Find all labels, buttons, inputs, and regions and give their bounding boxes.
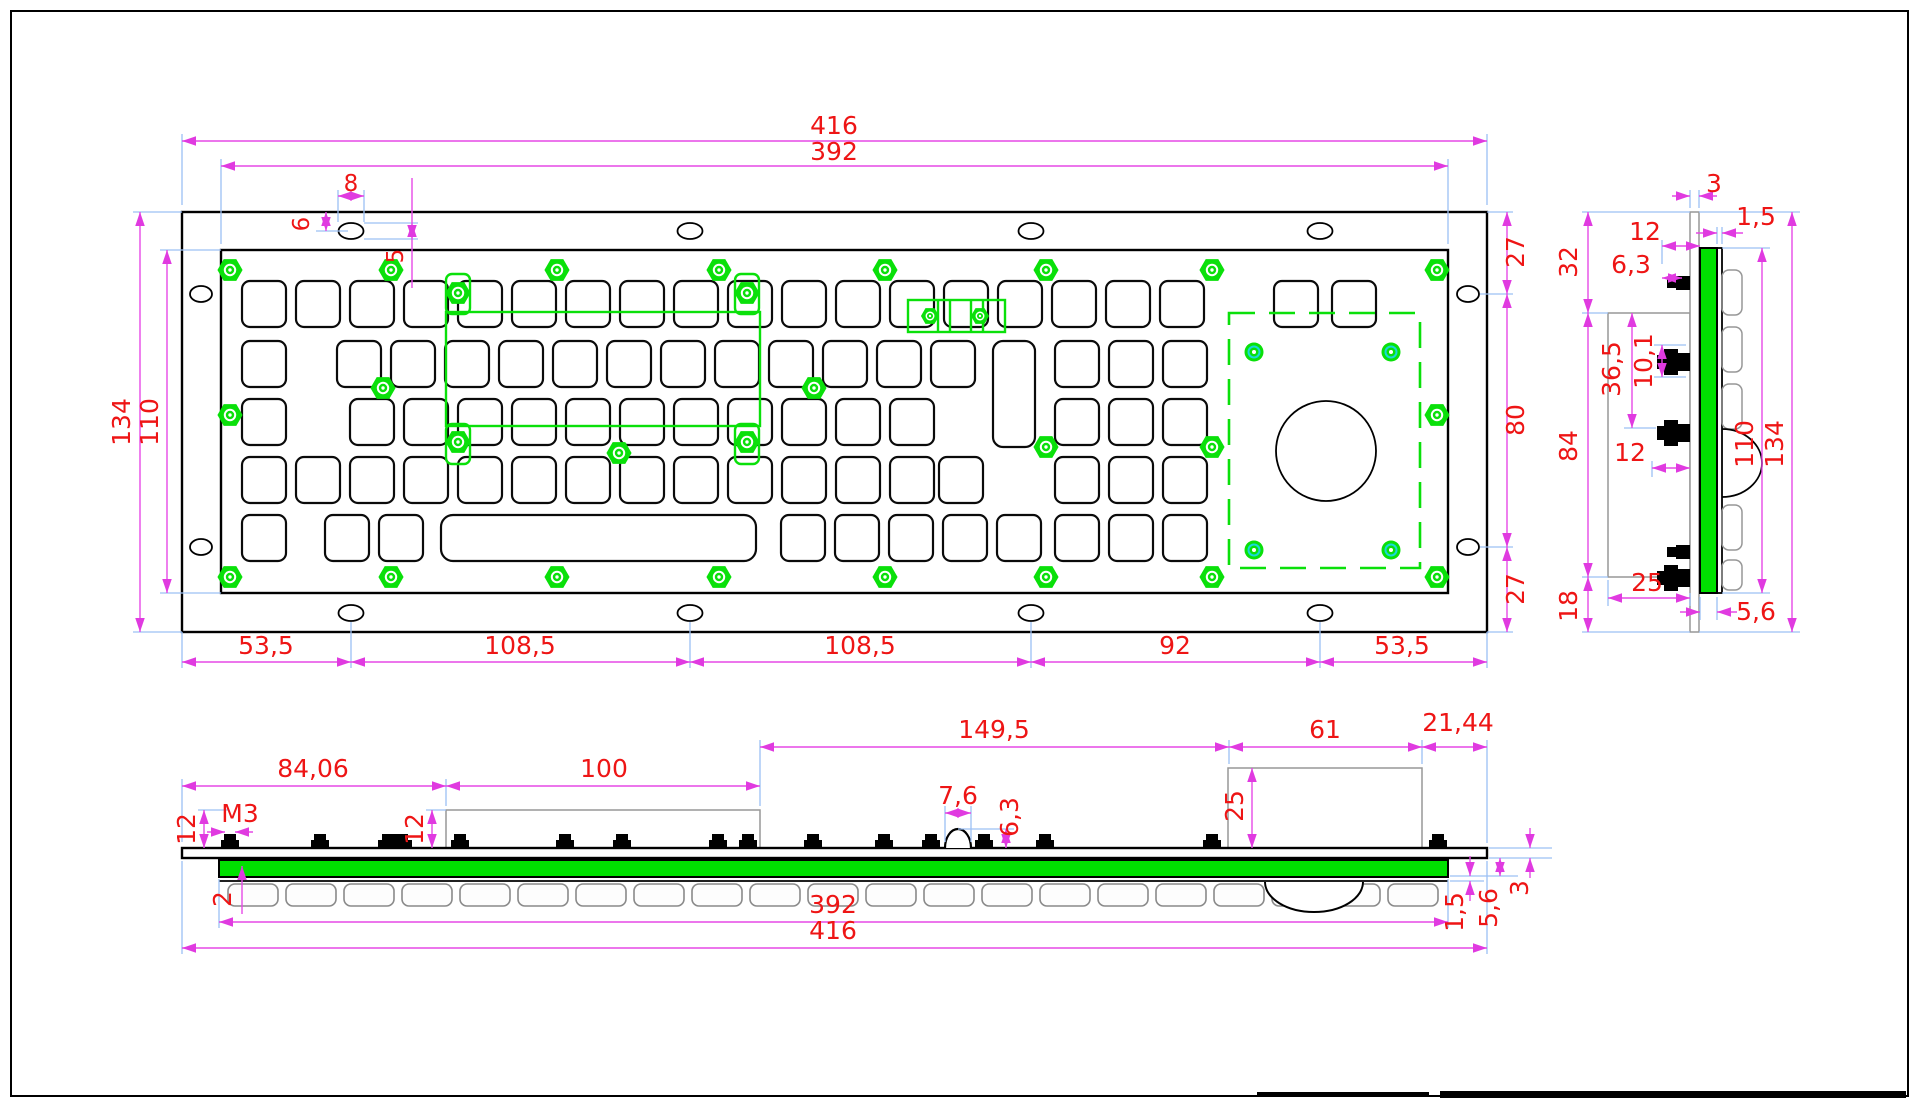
dim-label: 416 <box>810 111 858 140</box>
key <box>242 457 286 503</box>
dim-label: 61 <box>1309 715 1341 744</box>
trackball-screw-icon <box>1382 541 1401 560</box>
keycap-profile <box>1388 884 1438 906</box>
key <box>512 399 556 445</box>
key <box>836 281 880 327</box>
keycap-profile <box>518 884 568 906</box>
side-dimensions: 3 1,5 12 6,3 32 36,5 10,1 84 12 25 18 5,… <box>1554 169 1800 632</box>
dim-label: 12 <box>1629 217 1661 246</box>
key <box>1163 457 1207 503</box>
keycap-profile <box>692 884 742 906</box>
dim-label: 32 <box>1554 246 1583 278</box>
keycap-profile <box>344 884 394 906</box>
stud-icon <box>1039 834 1051 841</box>
drawing-sheet: 416 392 8 6 5 134 110 27 80 27 53,5 108,… <box>0 0 1920 1099</box>
dim-label: 6 <box>289 217 315 232</box>
stud-icon <box>556 840 574 848</box>
keycap-profile <box>460 884 510 906</box>
dim-label: 92 <box>1159 631 1191 660</box>
trackball-screw-icon <box>1245 541 1264 560</box>
keycap-profile <box>1156 884 1206 906</box>
trackball-screw-icon <box>1245 343 1264 362</box>
trackball-screw-icon <box>1382 343 1401 362</box>
dim-label: 392 <box>810 137 858 166</box>
front-view: 416 392 8 6 5 134 110 27 80 27 53,5 108,… <box>107 111 1530 668</box>
stud-icon <box>807 834 819 841</box>
key <box>997 515 1041 561</box>
keycap-profile <box>634 884 684 906</box>
dim-label: 7,6 <box>938 781 978 810</box>
stud-icon <box>922 840 940 848</box>
stud-icon <box>314 834 326 841</box>
key <box>296 281 340 327</box>
dim-label: 12 <box>400 813 429 845</box>
dim-label: 84 <box>1554 430 1583 462</box>
key <box>350 457 394 503</box>
trackball-bulge <box>1265 882 1363 912</box>
key <box>499 341 543 387</box>
keycap-profile <box>982 884 1032 906</box>
key <box>1163 399 1207 445</box>
key <box>620 399 664 445</box>
dim-label: 53,5 <box>238 631 294 660</box>
key <box>620 281 664 327</box>
key <box>782 281 826 327</box>
key <box>242 399 286 445</box>
key <box>782 457 826 503</box>
keycap-profile <box>750 884 800 906</box>
dim-label: 12 <box>172 813 201 845</box>
keycap-profile <box>924 884 974 906</box>
dim-label: 10,1 <box>1629 333 1658 389</box>
stud-icon <box>311 840 329 848</box>
key <box>337 341 381 387</box>
keycap-profile <box>1214 884 1264 906</box>
green-panel-bar <box>1700 248 1717 593</box>
key <box>890 457 934 503</box>
key <box>674 399 718 445</box>
stud-icon <box>975 840 993 848</box>
stud-icon <box>739 840 757 848</box>
key <box>350 281 394 327</box>
key <box>890 399 934 445</box>
key <box>674 281 718 327</box>
dim-label: 18 <box>1554 590 1583 622</box>
key <box>325 515 369 561</box>
dim-label: M3 <box>221 799 258 828</box>
stud-icon <box>224 834 236 841</box>
stud-icon <box>1429 840 1447 848</box>
key <box>1163 341 1207 387</box>
key <box>931 341 975 387</box>
dim-label: 134 <box>107 398 136 446</box>
spacebar-key <box>441 515 756 561</box>
key <box>1274 281 1318 327</box>
cable-dome <box>945 829 971 848</box>
key <box>1109 399 1153 445</box>
key <box>781 515 825 561</box>
key <box>1109 341 1153 387</box>
dim-label: 25 <box>1631 568 1663 597</box>
key <box>782 399 826 445</box>
dim-label: 27 <box>1501 573 1530 605</box>
titleblock-edge <box>1257 1092 1429 1097</box>
key <box>1109 457 1153 503</box>
dim-label: 84,06 <box>277 754 349 783</box>
dim-label: 53,5 <box>1374 631 1430 660</box>
dim-label: 3 <box>1706 169 1722 198</box>
keycap-profile <box>402 884 452 906</box>
key <box>445 341 489 387</box>
dim-label: 8 <box>344 171 359 197</box>
key <box>661 341 705 387</box>
key <box>835 515 879 561</box>
key <box>512 457 556 503</box>
key <box>836 399 880 445</box>
dim-label: 149,5 <box>958 715 1030 744</box>
bottom-dimensions: 84,06 100 149,5 61 21,44 12 M3 12 7,6 6,… <box>172 708 1552 954</box>
key <box>1055 341 1099 387</box>
keycap-profile <box>576 884 626 906</box>
key <box>1055 457 1099 503</box>
key <box>553 341 597 387</box>
key <box>242 281 286 327</box>
dim-label: 2 <box>208 891 237 907</box>
stud-icon <box>221 840 239 848</box>
key <box>1109 515 1153 561</box>
key <box>1163 515 1207 561</box>
titleblock-edge <box>1440 1091 1906 1098</box>
key <box>823 341 867 387</box>
dim-label: 392 <box>809 890 857 919</box>
tall-key <box>993 341 1035 447</box>
key <box>296 457 340 503</box>
stud-icon <box>451 840 469 848</box>
key <box>889 515 933 561</box>
trackball-housing-box <box>1228 768 1422 848</box>
stud-icon <box>712 834 724 841</box>
stud-icon <box>878 834 890 841</box>
key <box>943 515 987 561</box>
stud-icon <box>559 834 571 841</box>
stud-icon <box>804 840 822 848</box>
keycap-profile <box>286 884 336 906</box>
stud-icon <box>925 834 937 841</box>
stud-icon <box>742 834 754 841</box>
dim-label: 80 <box>1501 404 1530 436</box>
key <box>404 281 448 327</box>
key <box>674 457 718 503</box>
stud-icon <box>1036 840 1054 848</box>
panel-plate <box>182 848 1487 858</box>
keycap-profile <box>866 884 916 906</box>
dim-label: 3 <box>1505 880 1534 896</box>
key <box>1055 515 1099 561</box>
dim-label: 1,5 <box>1736 202 1776 231</box>
side-view: 3 1,5 12 6,3 32 36,5 10,1 84 12 25 18 5,… <box>1554 169 1800 632</box>
stud-icon <box>978 834 990 841</box>
key <box>1160 281 1204 327</box>
key <box>242 341 286 387</box>
cad-drawing: 416 392 8 6 5 134 110 27 80 27 53,5 108,… <box>0 0 1920 1099</box>
front-panel-profile <box>1690 212 1699 632</box>
dim-label: 6,3 <box>1611 250 1651 279</box>
key <box>391 341 435 387</box>
stud-icon <box>1203 840 1221 848</box>
dim-label: 5,6 <box>1736 597 1776 626</box>
dim-label: 27 <box>1501 236 1530 268</box>
key <box>620 457 664 503</box>
key <box>607 341 651 387</box>
dim-label: 110 <box>135 398 164 446</box>
key <box>404 399 448 445</box>
dim-label: 110 <box>1730 420 1759 468</box>
stud-icon <box>709 840 727 848</box>
key <box>350 399 394 445</box>
key <box>1332 281 1376 327</box>
key <box>379 515 423 561</box>
key <box>1052 281 1096 327</box>
dim-label: 5 <box>383 249 409 264</box>
stud-icon <box>1432 834 1444 841</box>
dim-label: 134 <box>1760 420 1789 468</box>
green-panel-bar <box>219 860 1448 877</box>
dim-label: 25 <box>1220 790 1249 822</box>
key <box>1055 399 1099 445</box>
stud-icon <box>1206 834 1218 841</box>
side-studs <box>1657 276 1690 591</box>
dim-label: 36,5 <box>1597 341 1626 397</box>
key <box>877 341 921 387</box>
bottom-view: 84,06 100 149,5 61 21,44 12 M3 12 7,6 6,… <box>172 708 1552 954</box>
key <box>404 457 448 503</box>
stud-icon <box>875 840 893 848</box>
dim-label: 108,5 <box>824 631 896 660</box>
dim-label: 100 <box>580 754 628 783</box>
key <box>242 515 286 561</box>
stud-icon <box>613 840 631 848</box>
stud-icon <box>454 834 466 841</box>
dim-label: 416 <box>809 916 857 945</box>
dim-label: 108,5 <box>484 631 556 660</box>
dim-label: 6,3 <box>995 797 1024 837</box>
key <box>1106 281 1150 327</box>
dim-label: 1,5 <box>1440 892 1469 932</box>
dim-label: 12 <box>1614 438 1646 467</box>
keycap-profile <box>1040 884 1090 906</box>
key <box>566 281 610 327</box>
dim-label: 21,44 <box>1422 708 1494 737</box>
key <box>836 457 880 503</box>
key <box>939 457 983 503</box>
key <box>566 457 610 503</box>
key <box>566 399 610 445</box>
dim-label: 5,6 <box>1474 888 1503 928</box>
stud-icon <box>616 834 628 841</box>
key <box>715 341 759 387</box>
keycap-profile <box>1098 884 1148 906</box>
key <box>512 281 556 327</box>
